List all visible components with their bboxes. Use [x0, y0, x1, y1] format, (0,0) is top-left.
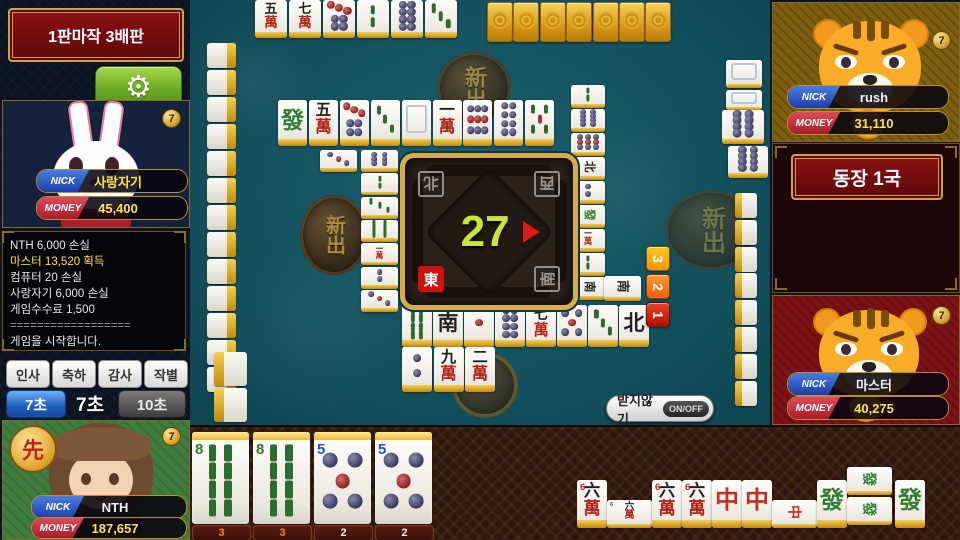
- wind-indicator-south: 南: [534, 266, 560, 292]
- pin-dot: [369, 292, 375, 298]
- man-symbol: 萬: [526, 323, 556, 338]
- honor-char: 中: [742, 489, 772, 513]
- wall-tile: [735, 327, 757, 352]
- mahjong-tile-2s: [571, 85, 605, 108]
- nick-label: NICK: [37, 170, 89, 192]
- meld-tile-F: 發: [895, 480, 925, 528]
- tile-gold-edge: [726, 84, 762, 88]
- nick-bar-west: NICK 사랑자기: [36, 169, 188, 193]
- tile-gold-edge: [712, 520, 742, 528]
- wall-tile: [207, 70, 236, 95]
- tile-gold-edge: [557, 340, 587, 347]
- meld-tile-F: 發: [847, 497, 892, 525]
- wind-indicator-west: 西: [534, 171, 560, 197]
- log-line: 게임을 시작합니다.: [10, 334, 185, 350]
- money-label: MONEY: [32, 518, 84, 538]
- tile-gold-edge: [465, 385, 495, 392]
- mahjong-tile-5m: 五 萬: [309, 100, 338, 146]
- man-symbol: 萬: [361, 252, 398, 260]
- honor-char: 南: [433, 313, 463, 334]
- meld-tile-6m: 六 萬6: [607, 500, 652, 528]
- sou-stick: [446, 19, 450, 29]
- man-symbol: 萬: [255, 16, 287, 30]
- pin-dot: [481, 126, 489, 134]
- man-number: 九: [434, 350, 464, 365]
- nick-value: 마스터: [840, 375, 948, 394]
- nick-bar-self: NICK NTH: [31, 495, 187, 519]
- tile-gold-edge: [357, 32, 389, 38]
- mahjong-tile-F: 發: [278, 100, 307, 146]
- man-number: 二: [465, 350, 495, 365]
- mahjong-tile-8p: [722, 110, 764, 144]
- man-symbol: 萬: [577, 500, 607, 517]
- wall-tile: [735, 354, 757, 379]
- pin-dot: [585, 184, 591, 190]
- tile-gold-edge: [361, 308, 398, 312]
- tile-face: 中: [742, 480, 772, 520]
- meld-tile-6m: 六 萬6: [652, 480, 682, 528]
- gear-icon: ⚙: [125, 73, 152, 103]
- hand-tile-8s[interactable]: 8: [192, 432, 249, 524]
- wait-count-badge: 3: [192, 525, 251, 540]
- sou-stick: [439, 11, 443, 21]
- mahjong-tile-P: [402, 100, 431, 146]
- sou-stick: [531, 105, 535, 114]
- tile-face: 七 萬: [289, 0, 321, 32]
- pin-dot: [377, 276, 383, 282]
- money-bar-north: MONEY 31,110: [787, 111, 949, 135]
- wall-tile: [735, 381, 757, 406]
- sou-stick: [386, 206, 389, 213]
- nick-value: rush: [840, 90, 948, 105]
- mahjong-tile-2s: [357, 0, 389, 38]
- chip-number: 3: [650, 255, 666, 263]
- sou-stick: [209, 499, 217, 516]
- pin-dot: [590, 121, 596, 127]
- wall-tile: [207, 232, 236, 257]
- man-symbol: 萬: [607, 511, 652, 521]
- timer-button-right[interactable]: 10초: [118, 390, 186, 418]
- mahjong-tile-8p: [495, 305, 525, 347]
- tile-face: [728, 146, 768, 172]
- sou-stick: [586, 94, 589, 101]
- dealer-seal: 先: [9, 425, 57, 473]
- corner-ornament: [2, 231, 14, 243]
- tile-gold-edge: [619, 340, 649, 347]
- hand-tile-5p[interactable]: 5: [375, 432, 432, 524]
- tile-gold-edge: [309, 139, 338, 146]
- tile-gold-edge: [391, 32, 423, 38]
- pin-dot: [330, 22, 338, 30]
- pin-dot: [413, 354, 421, 362]
- chip-number: 2: [650, 283, 666, 291]
- pin-dot: [738, 163, 746, 171]
- meld-tile-F: 發: [817, 480, 847, 528]
- no-call-label: 받지않기: [617, 390, 663, 428]
- meld-tile-C: 中: [742, 480, 772, 528]
- money-value: 31,110: [840, 116, 948, 131]
- tile-face: [525, 100, 554, 139]
- honba-chip-1: 1: [646, 302, 670, 327]
- tile-gold-edge: [772, 524, 817, 528]
- corner-ornament: [945, 278, 957, 290]
- log-line: 컴퓨터 20 손실: [10, 270, 185, 286]
- round-info-panel: 동장 1국 發二 萬: [772, 143, 960, 293]
- tile-gold-edge: [433, 340, 463, 347]
- honor-char: 發: [895, 489, 925, 513]
- timer-button-left[interactable]: 7초: [6, 390, 66, 418]
- sou-stick: [544, 125, 548, 134]
- nick-label: NICK: [32, 496, 84, 518]
- tile-number: 8: [256, 442, 264, 457]
- tile-face: 五 萬: [309, 100, 338, 139]
- chat-button-1[interactable]: 인사: [6, 360, 50, 388]
- pin-dot: [502, 315, 510, 323]
- tile-gold-edge: [464, 340, 494, 347]
- mahjong-tile-5s: [525, 100, 554, 146]
- rank-badge: 7: [932, 31, 951, 50]
- mahjong-tile-1m: 一 萬: [361, 243, 398, 265]
- tile-face: [361, 173, 398, 191]
- pin-dot: [501, 111, 509, 119]
- nick-value: NTH: [84, 500, 186, 515]
- tile-gold-edge: [495, 340, 525, 347]
- tile-gold-edge: [361, 192, 398, 196]
- tile-face: 中: [772, 500, 817, 522]
- tile-gold-edge: [817, 520, 847, 528]
- white-dragon-face: [731, 63, 757, 80]
- pin-dot: [501, 129, 509, 137]
- pin-dot: [502, 331, 510, 339]
- sou-stick: [586, 262, 589, 269]
- tile-gold-edge: [847, 521, 892, 525]
- log-line: ==================: [10, 318, 185, 334]
- mahjong-tile-7p: [340, 100, 369, 146]
- tile-gold-edge: [361, 238, 398, 242]
- nick-bar-north: NICK rush: [787, 85, 949, 109]
- tile-face: [571, 133, 605, 151]
- honor-char: 發: [817, 489, 847, 513]
- chat-button-3[interactable]: 감사: [98, 360, 142, 388]
- sou-stick: [586, 87, 589, 94]
- hand-tile-8s[interactable]: 8: [253, 432, 310, 524]
- tile-face: [726, 60, 762, 84]
- tile-face: 九 萬: [434, 347, 464, 385]
- wall-tile: [214, 388, 247, 422]
- mahjong-tile-P: [726, 60, 762, 88]
- man-symbol: 萬: [309, 119, 338, 136]
- tile-gold-edge: [722, 139, 764, 144]
- player-self-panel: 先 7 NICK NTH MONEY 187,657: [2, 420, 190, 540]
- mahjong-tile-9m: 九 萬: [434, 347, 464, 392]
- man-symbol: 萬: [465, 366, 495, 382]
- tile-top-edge: [253, 432, 310, 440]
- nick-bar-east: NICK 마스터: [787, 372, 949, 396]
- sou-stick: [411, 330, 415, 339]
- tile-gold-edge: [402, 385, 432, 392]
- pin-dot: [575, 310, 583, 318]
- tile-face: 五 萬: [255, 0, 287, 32]
- pin-dot: [409, 494, 424, 509]
- money-bar-west: MONEY 45,400: [36, 196, 188, 220]
- tile-number: 8: [195, 442, 203, 457]
- tile-face: [588, 305, 618, 340]
- log-line: NTH 6,000 손실: [10, 238, 185, 254]
- pin-dot: [396, 473, 411, 488]
- honor-char: 中: [712, 489, 742, 513]
- pin-dot: [371, 160, 377, 166]
- wall-tile: [735, 220, 757, 245]
- honor-char: 北: [619, 313, 649, 334]
- tile-face: 南: [433, 305, 463, 340]
- tile-gold-edge: [588, 340, 618, 347]
- tile-face: 南: [604, 276, 641, 296]
- rank-badge: 7: [162, 109, 181, 128]
- tile-face: 六 萬6: [577, 480, 607, 520]
- tile-face: [391, 0, 423, 32]
- pin-dot: [593, 144, 599, 150]
- sou-stick: [378, 175, 381, 182]
- white-dragon-face: [731, 92, 757, 104]
- money-label: MONEY: [788, 112, 840, 134]
- sou-stick: [285, 463, 293, 480]
- tile-face: 六 萬6: [682, 480, 712, 520]
- pin-dot: [501, 120, 509, 128]
- wall-tile: [207, 205, 236, 230]
- round-banner: 동장 1국: [791, 154, 943, 200]
- on-off-toggle[interactable]: ON/OFF: [663, 401, 709, 417]
- honor-char: 發: [278, 109, 307, 132]
- tile-face: [571, 109, 605, 127]
- mahjong-tile-3s: [361, 197, 398, 219]
- sou-stick: [390, 124, 394, 133]
- medallion-text: 新出: [320, 215, 349, 255]
- tile-face: [361, 197, 398, 215]
- sou-stick: [594, 310, 598, 319]
- tile-gold-edge: [320, 168, 357, 172]
- corner-ornament: [174, 339, 186, 351]
- chip-number: 1: [650, 311, 666, 319]
- wall-tile: [207, 124, 236, 149]
- pin-dot: [475, 319, 483, 327]
- pin-dot: [348, 494, 363, 509]
- mahjong-tile-2p: [361, 267, 398, 289]
- tile-gold-edge: [728, 173, 768, 178]
- tile-back: [593, 2, 619, 42]
- center-indicator-panel: 北 西 東 南 27: [400, 153, 578, 310]
- wall-tile: [735, 247, 757, 272]
- sou-stick: [601, 318, 605, 327]
- game-mode-text: 1판마작 3배판: [48, 23, 144, 47]
- pin-dot: [409, 453, 424, 468]
- pin-dot: [509, 111, 517, 119]
- pin-dot: [398, 23, 406, 31]
- corner-ornament: [2, 339, 14, 351]
- sou-stick: [224, 463, 232, 480]
- sou-stick: [285, 499, 293, 516]
- tile-face: [361, 150, 398, 168]
- tile-face: [495, 305, 525, 340]
- mahjong-tile-N: 北: [619, 305, 649, 347]
- chat-button-2[interactable]: 축하: [52, 360, 96, 388]
- mahjong-tile-3s: [588, 305, 618, 347]
- mahjong-tile-3s: [371, 100, 400, 146]
- sou-stick: [586, 255, 589, 262]
- corner-number: 6: [655, 483, 660, 493]
- tile-back: [645, 2, 671, 42]
- tile-face: [722, 110, 764, 137]
- tile-gold-edge: [425, 32, 457, 38]
- pin-dot: [744, 128, 753, 137]
- tile-gold-edge: [494, 139, 523, 146]
- man-number: 五: [255, 3, 287, 16]
- player-west-panel: 7 NICK 사랑자기 MONEY 45,400: [2, 100, 190, 228]
- pin-dot: [346, 128, 354, 136]
- tile-face: [323, 0, 355, 32]
- mahjong-tile-2m: 二 萬: [465, 347, 495, 392]
- corner-ornament: [945, 146, 957, 158]
- tile-back: [540, 2, 566, 42]
- nick-label: NICK: [788, 86, 840, 108]
- tile-gold-edge: [604, 297, 641, 301]
- corner-number: 6: [610, 503, 613, 509]
- pin-dot: [509, 102, 517, 110]
- tile-face: [371, 100, 400, 139]
- wait-count-badge: 3: [253, 525, 312, 540]
- sou-stick: [270, 481, 278, 498]
- sou-stick: [383, 115, 387, 124]
- tile-face: [425, 0, 457, 32]
- meld-tile-6m: 六 萬6: [577, 480, 607, 528]
- tile-face: 一 萬: [433, 100, 462, 139]
- pin-dot: [377, 269, 383, 275]
- nick-label: NICK: [788, 373, 840, 395]
- pin-dot: [348, 453, 363, 468]
- mahjong-tile-8p: [728, 146, 768, 178]
- pin-dot: [561, 310, 569, 318]
- tile-face: [402, 305, 432, 340]
- pin-dot: [510, 323, 518, 331]
- sou-stick: [209, 481, 217, 498]
- pin-dot: [407, 23, 415, 31]
- tile-gold-edge: [433, 139, 462, 146]
- wall-tile: [735, 273, 757, 298]
- wall-tile: [207, 313, 236, 338]
- wind-indicator-north: 北: [418, 171, 444, 197]
- tile-gold-edge: [463, 139, 492, 146]
- sou-stick: [378, 182, 381, 189]
- sou-stick: [224, 499, 232, 516]
- log-line: 게임수수료 1,500: [10, 302, 185, 318]
- pin-dot: [327, 1, 335, 9]
- man-symbol: 萬: [434, 366, 464, 382]
- tile-face: 發: [895, 480, 925, 520]
- hand-tile-5p[interactable]: 5: [314, 432, 371, 524]
- tile-face: 六 萬6: [652, 480, 682, 520]
- mahjong-tile-2p: [402, 347, 432, 392]
- mahjong-tile-3p: [361, 290, 398, 312]
- corner-number: 6: [580, 483, 585, 493]
- money-value: 45,400: [89, 201, 187, 216]
- money-label: MONEY: [788, 397, 840, 419]
- pin-dot: [346, 119, 354, 127]
- tile-back: [487, 2, 513, 42]
- pin-dot: [335, 473, 350, 488]
- pin-dot: [575, 328, 583, 336]
- game-screen: 新出 新出 新出 五 萬七 萬發五 萬一 萬一 萬北發一 萬南南南七 萬北九: [0, 0, 960, 540]
- medallion-text: 新出: [694, 206, 729, 254]
- pin-dot: [509, 120, 517, 128]
- tile-face: 六 萬6: [607, 500, 652, 522]
- wall-tile: [207, 151, 236, 176]
- mahjong-tile-5m: 五 萬: [255, 0, 287, 38]
- sou-stick: [377, 106, 381, 115]
- log-line: 사랑자기 6,000 손실: [10, 286, 185, 302]
- pin-dot: [733, 128, 742, 137]
- mahjong-tile-2s: [361, 173, 398, 195]
- sou-stick: [270, 445, 278, 462]
- wind-indicator-east-active: 東: [418, 266, 444, 292]
- tile-gold-edge: [742, 520, 772, 528]
- seat-medallion-left: 新出: [300, 195, 368, 275]
- pin-dot: [481, 116, 489, 124]
- mahjong-tile-8p: [391, 0, 423, 38]
- sou-stick: [373, 231, 376, 238]
- sou-stick: [209, 463, 217, 480]
- tile-gold-edge: [607, 524, 652, 528]
- pin-dot: [413, 370, 421, 378]
- money-value: 187,657: [84, 521, 186, 536]
- money-label: MONEY: [37, 197, 89, 219]
- pin-dot: [336, 156, 342, 162]
- pin-dot: [377, 296, 383, 302]
- tile-face: 發: [847, 497, 892, 519]
- round-text: 동장 1국: [833, 164, 901, 191]
- chat-button-4[interactable]: 작별: [144, 360, 188, 388]
- tile-gold-edge: [571, 128, 605, 132]
- sou-stick: [538, 115, 542, 124]
- nick-value: 사랑자기: [89, 172, 187, 191]
- pin-dot: [561, 328, 569, 336]
- sou-stick: [544, 105, 548, 114]
- tile-gold-edge: [278, 139, 307, 146]
- wall-tile: [207, 43, 236, 68]
- sou-stick: [285, 481, 293, 498]
- rank-badge: 7: [162, 427, 181, 446]
- tile-face: 北: [619, 305, 649, 340]
- mahjong-tile-7m: 七 萬: [289, 0, 321, 38]
- honba-chip-3: 3: [646, 246, 670, 271]
- sou-stick: [270, 463, 278, 480]
- tile-top-edge: [375, 432, 432, 440]
- no-call-toggle-button[interactable]: 받지않기 ON/OFF: [606, 395, 714, 422]
- mahjong-tile-7m: 七 萬: [526, 305, 556, 347]
- mahjong-tile-8s: [361, 220, 398, 242]
- man-symbol: 萬: [682, 500, 712, 517]
- tile-face: [463, 100, 492, 139]
- tile-gold-edge: [289, 32, 321, 38]
- pin-dot: [509, 129, 517, 137]
- pin-dot: [335, 4, 343, 12]
- pin-dot: [510, 331, 518, 339]
- tile-back: [619, 2, 645, 42]
- tile-gold-edge: [526, 340, 556, 347]
- turn-countdown: 27: [461, 207, 510, 257]
- man-symbol: 萬: [289, 16, 321, 30]
- sou-stick: [371, 5, 375, 15]
- sou-stick: [419, 330, 423, 339]
- mahjong-tile-8s: [402, 305, 432, 347]
